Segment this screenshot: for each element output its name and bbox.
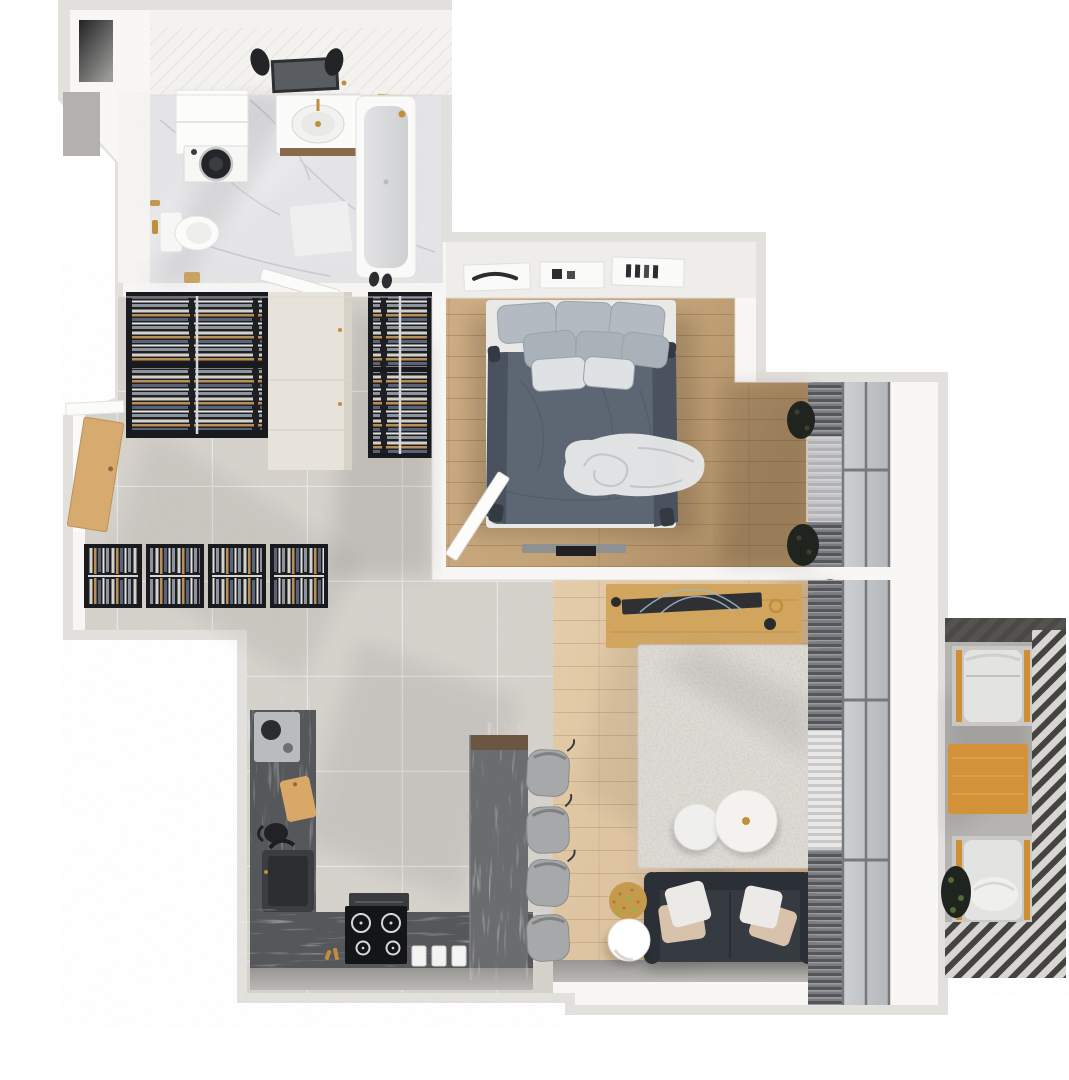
tv-console (606, 584, 802, 648)
kitchen-sink (262, 841, 314, 912)
balcony-plant (941, 866, 971, 918)
wall-block (63, 92, 100, 156)
sofa-cushion-white2 (738, 884, 783, 929)
floor-plan (0, 0, 1069, 1080)
bedroom-sheer-curtain (806, 436, 844, 522)
gold-pouf (609, 882, 647, 920)
double-bed (470, 300, 705, 535)
jars (412, 946, 466, 966)
wardrobe-row-unit (146, 544, 204, 608)
tall-wardrobe-right (368, 292, 432, 458)
living-room (553, 579, 852, 982)
toilet-brush-gold (184, 272, 200, 283)
wardrobe-row-unit (84, 544, 142, 608)
cooktop (345, 906, 407, 964)
sofa (644, 872, 820, 970)
living-blinds-top (808, 580, 842, 730)
utility-shaft (79, 20, 113, 82)
throw-blanket (564, 433, 705, 496)
bathroom-wall-tiles-left (118, 92, 152, 283)
wall-shelf-1 (464, 263, 531, 291)
floor-plan-canvas (0, 0, 1069, 1080)
beige-dresser (268, 292, 352, 470)
towel-hook-gold (150, 200, 160, 206)
balcony-side-table (948, 744, 1028, 814)
balcony (941, 618, 1066, 978)
wardrobe-row-unit (208, 544, 266, 608)
bathroom (118, 10, 452, 302)
lounge-chair-top (952, 646, 1034, 726)
coffee-machine (254, 712, 300, 762)
washing-machine (184, 146, 248, 182)
bar-stool (526, 914, 570, 962)
living-blinds-bottom (808, 850, 842, 1005)
gold-fitting (342, 81, 347, 86)
wall-shelf-2 (540, 262, 604, 288)
console-decor-dark2 (764, 618, 776, 630)
bar-counter (470, 735, 528, 968)
bathtub (356, 96, 416, 278)
vanity-sink (276, 94, 362, 156)
tall-wardrobe-left (126, 292, 268, 438)
wall-shelf-3 (612, 257, 685, 287)
living-blinds-sheer (808, 730, 842, 850)
wardrobe-row-unit (270, 544, 328, 608)
console-decor-dark (611, 597, 621, 607)
bath-mat (290, 201, 353, 257)
